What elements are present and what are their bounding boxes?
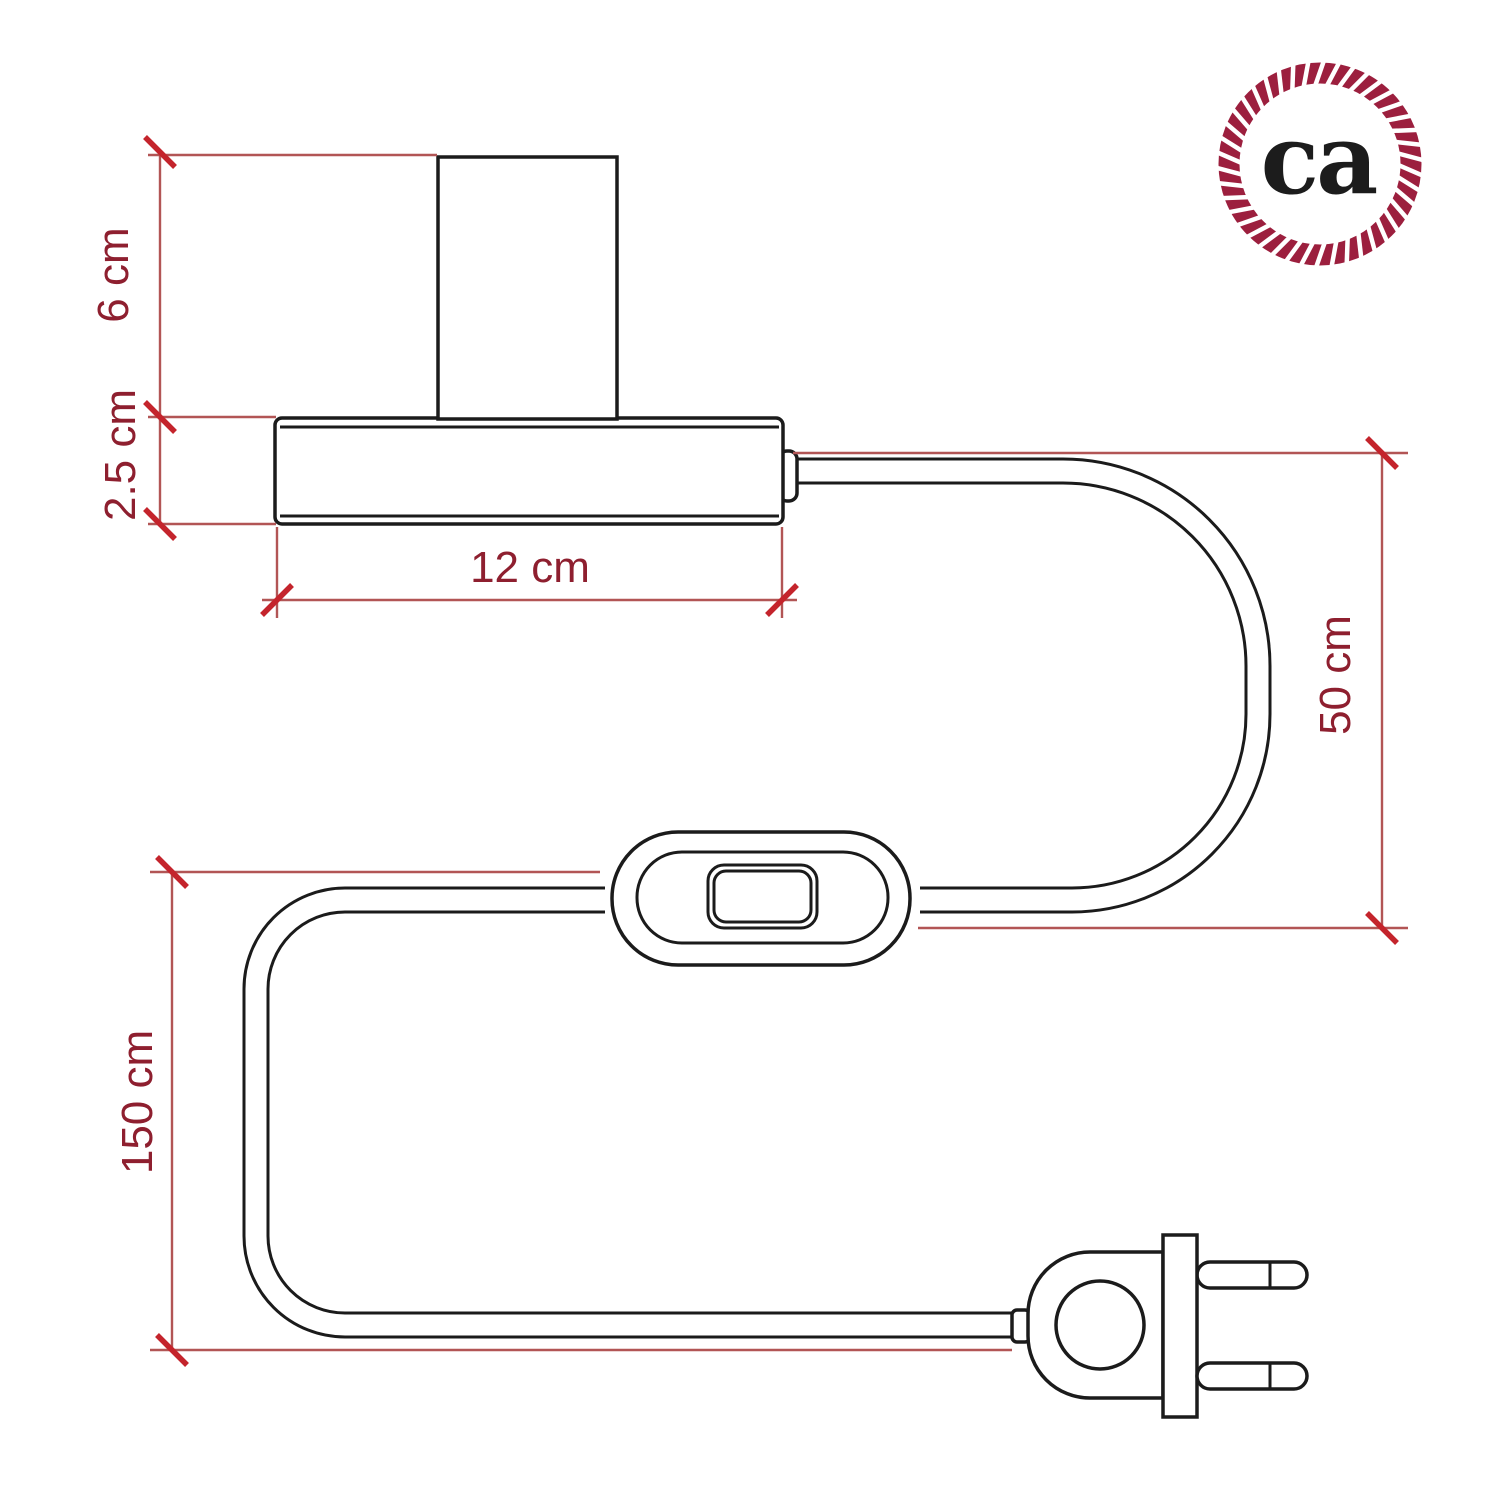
plug-plate [1163,1235,1197,1417]
lamp-base [275,418,797,524]
inline-switch [612,832,910,965]
plug-prong-bottom [1197,1363,1307,1389]
power-plug [1012,1235,1307,1417]
power-cable-switch-to-plug [256,900,1018,1325]
plug-body-circle [1056,1281,1144,1369]
dimension-base-width: 12 cm [262,527,797,618]
dim-label-base-height: 2.5 cm [96,389,145,521]
dim-label-base-width: 12 cm [470,543,590,592]
dimension-drawing: 6 cm 2.5 cm 12 cm 50 cm 150 cm ca [0,0,1500,1500]
brand-logo: ca [1214,58,1426,270]
brand-logo-text: ca [1261,103,1376,216]
dim-label-lamp-to-switch: 50 cm [1311,615,1360,735]
lamp-technical-drawing: 6 cm 2.5 cm 12 cm 50 cm 150 cm ca [0,0,1500,1500]
lamp-socket [438,157,617,419]
plug-prong-top [1197,1262,1307,1288]
dim-label-total-cable: 150 cm [113,1030,162,1174]
dim-label-socket-height: 6 cm [89,227,138,322]
